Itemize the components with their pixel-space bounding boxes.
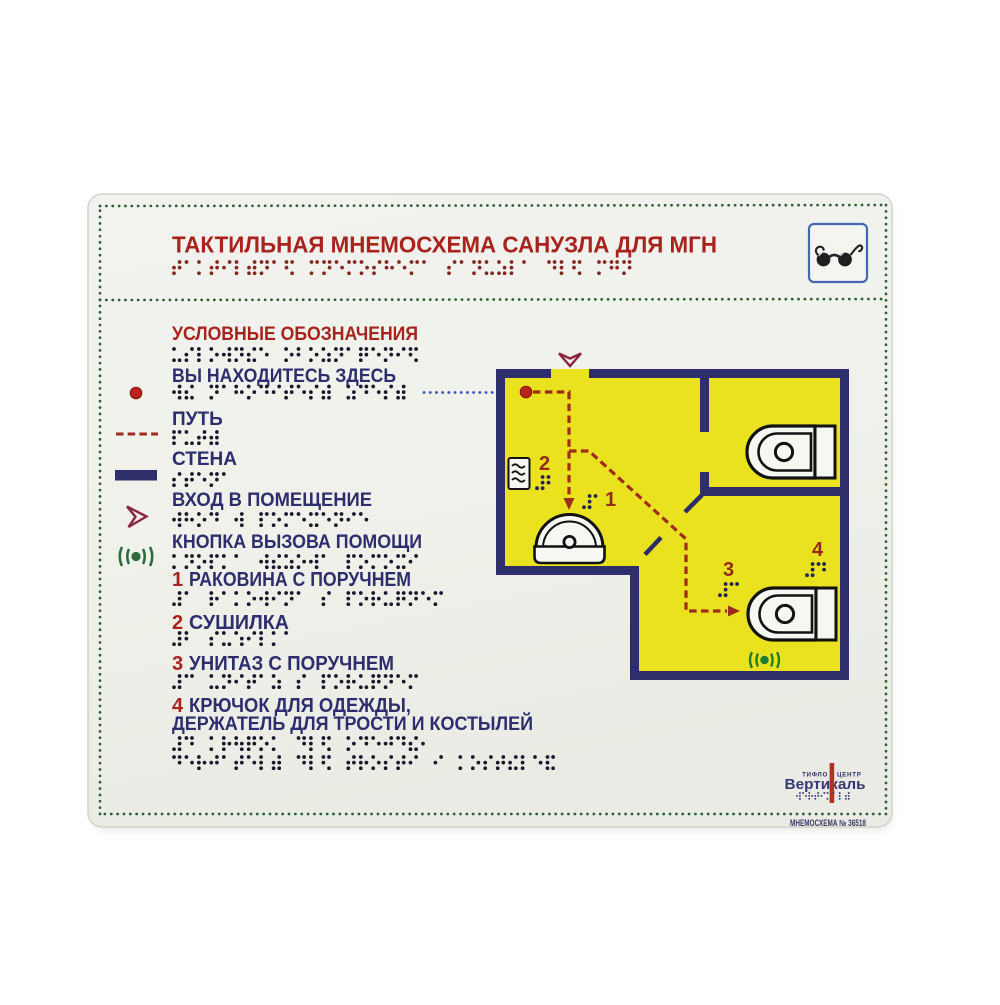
svg-text:1: 1: [172, 569, 183, 591]
svg-text:РАКОВИНА С ПОРУЧНЕМ: РАКОВИНА С ПОРУЧНЕМ: [189, 569, 411, 591]
svg-text:Вертикаль: Вертикаль: [785, 776, 866, 793]
svg-text:УНИТАЗ С ПОРУЧНЕМ: УНИТАЗ С ПОРУЧНЕМ: [189, 653, 394, 675]
svg-text:ПУТЬ: ПУТЬ: [172, 409, 223, 430]
svg-text:2: 2: [539, 453, 550, 475]
svg-text:4: 4: [812, 539, 824, 561]
svg-text:СТЕНА: СТЕНА: [172, 449, 237, 470]
svg-text:ВЫ НАХОДИТЕСЬ ЗДЕСЬ: ВЫ НАХОДИТЕСЬ ЗДЕСЬ: [172, 366, 396, 387]
svg-text:ТАКТИЛЬНАЯ МНЕМОСХЕМА САНУЗЛА: ТАКТИЛЬНАЯ МНЕМОСХЕМА САНУЗЛА ДЛЯ МГН: [172, 232, 717, 258]
svg-text:ВХОД В ПОМЕЩЕНИЕ: ВХОД В ПОМЕЩЕНИЕ: [172, 490, 372, 511]
svg-text:УСЛОВНЫЕ ОБОЗНАЧЕНИЯ: УСЛОВНЫЕ ОБОЗНАЧЕНИЯ: [172, 324, 418, 345]
svg-text:СУШИЛКА: СУШИЛКА: [189, 612, 289, 634]
svg-text:1: 1: [605, 489, 616, 511]
svg-text:КНОПКА ВЫЗОВА ПОМОЩИ: КНОПКА ВЫЗОВА ПОМОЩИ: [172, 532, 422, 553]
svg-text:МНЕМОСХЕМА № 36518: МНЕМОСХЕМА № 36518: [790, 818, 866, 828]
svg-text:2: 2: [172, 612, 183, 634]
svg-text:ДЕРЖАТЕЛЬ ДЛЯ ТРОСТИ И КОСТЫЛЕ: ДЕРЖАТЕЛЬ ДЛЯ ТРОСТИ И КОСТЫЛЕЙ: [172, 713, 533, 735]
svg-text:3: 3: [723, 559, 734, 581]
svg-text:3: 3: [172, 653, 183, 675]
